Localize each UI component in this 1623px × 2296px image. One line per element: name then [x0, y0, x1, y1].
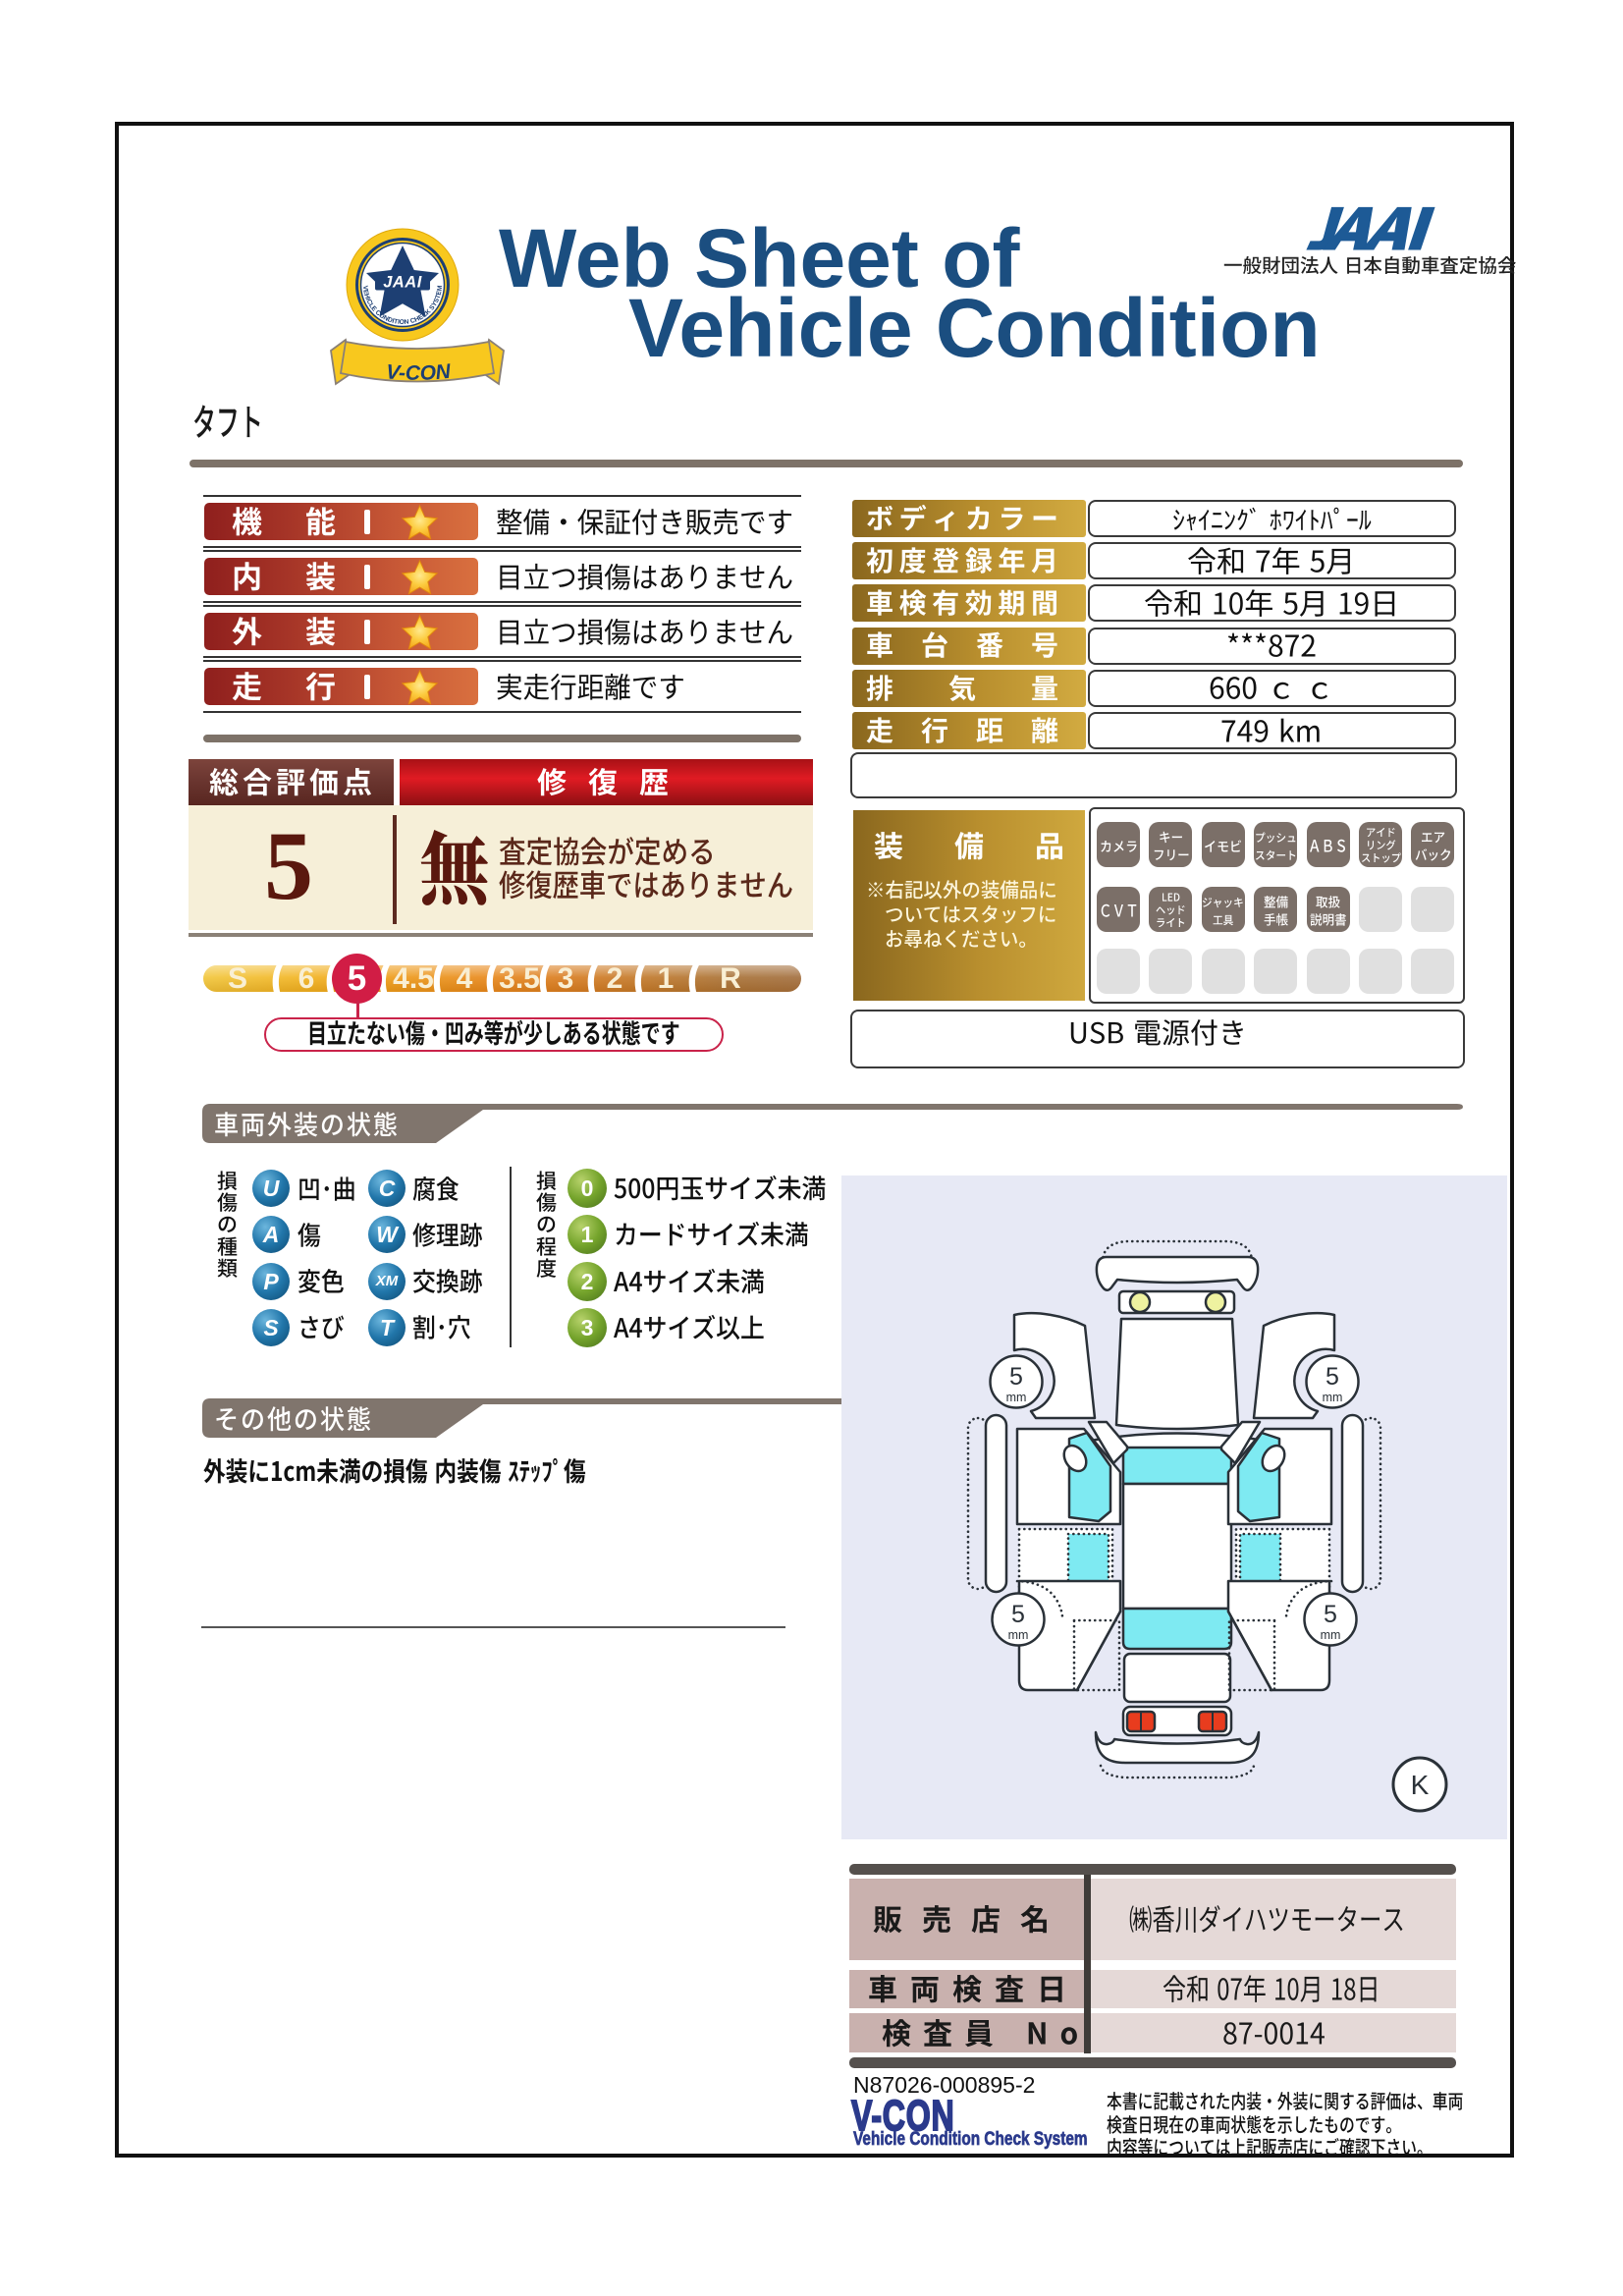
svg-text:mm: mm: [1323, 1391, 1343, 1404]
svg-text:5: 5: [1325, 1363, 1339, 1391]
svg-text:5: 5: [1011, 1601, 1025, 1628]
svg-text:JAAI: JAAI: [383, 274, 422, 292]
svg-text:mm: mm: [1321, 1628, 1341, 1642]
svg-text:5: 5: [1009, 1363, 1023, 1391]
svg-text:mm: mm: [1008, 1628, 1029, 1642]
svg-text:V-CON: V-CON: [385, 360, 452, 385]
svg-text:K: K: [1411, 1770, 1430, 1800]
svg-text:5: 5: [1324, 1601, 1337, 1628]
svg-text:mm: mm: [1006, 1391, 1027, 1404]
